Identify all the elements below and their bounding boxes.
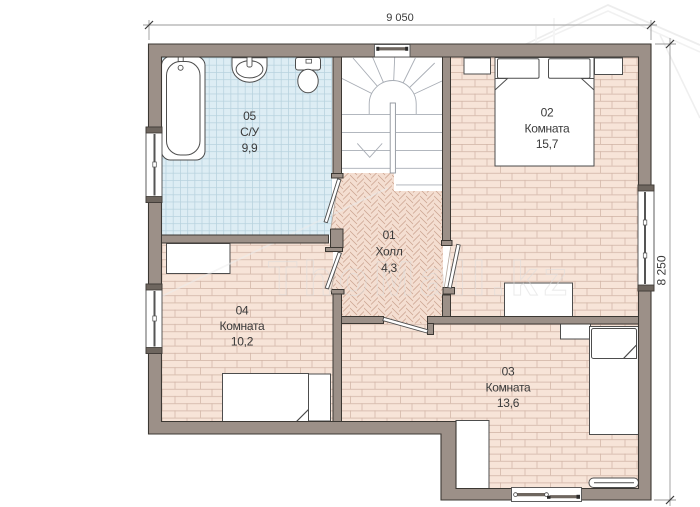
svg-text:Комната: Комната xyxy=(220,319,266,333)
svg-text:10,2: 10,2 xyxy=(231,335,254,349)
svg-text:02: 02 xyxy=(541,106,554,120)
svg-text:9,9: 9,9 xyxy=(242,141,258,155)
svg-text:8 250: 8 250 xyxy=(655,255,669,285)
svg-text:Комната: Комната xyxy=(486,381,532,395)
svg-text:Холл: Холл xyxy=(375,245,402,259)
svg-text:03: 03 xyxy=(502,365,515,379)
svg-text:05: 05 xyxy=(243,109,256,123)
svg-text:4,3: 4,3 xyxy=(381,261,397,275)
svg-text:15,7: 15,7 xyxy=(536,137,559,151)
svg-text:ThoMall.kz: ThoMall.kz xyxy=(268,253,573,306)
svg-text:01: 01 xyxy=(383,228,396,242)
svg-text:С/У: С/У xyxy=(240,125,259,139)
svg-text:04: 04 xyxy=(236,304,249,318)
svg-text:Комната: Комната xyxy=(525,122,571,136)
svg-text:9 050: 9 050 xyxy=(386,12,414,24)
svg-text:13,6: 13,6 xyxy=(497,396,520,410)
